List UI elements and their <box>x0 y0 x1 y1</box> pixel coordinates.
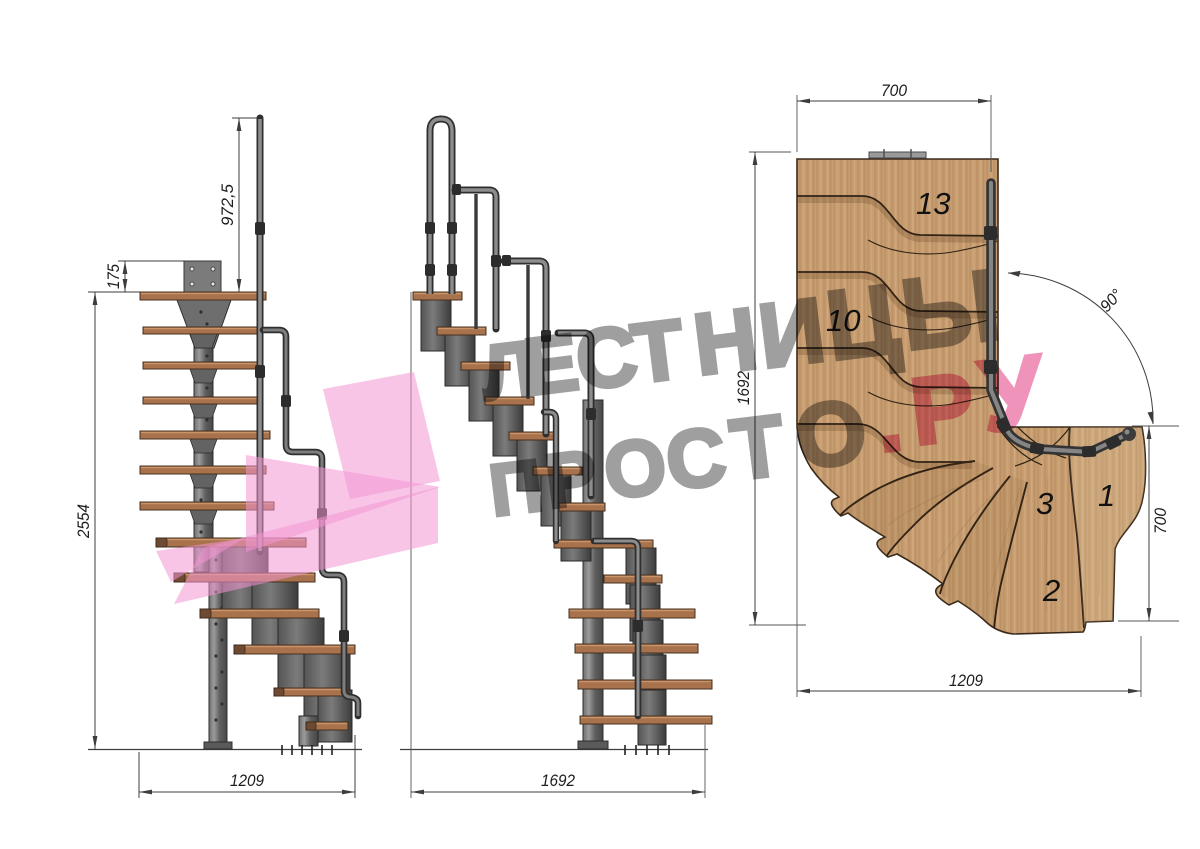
svg-text:2: 2 <box>1042 573 1060 608</box>
svg-text:90°: 90° <box>1097 286 1127 316</box>
svg-text:Т: Т <box>726 397 790 499</box>
svg-text:Р: Р <box>541 434 602 525</box>
svg-text:175: 175 <box>105 263 123 289</box>
svg-text:972,5: 972,5 <box>219 183 237 226</box>
svg-text:Р: Р <box>905 353 981 466</box>
svg-text:1209: 1209 <box>949 672 983 690</box>
svg-text:700: 700 <box>1152 507 1170 534</box>
svg-text:3: 3 <box>1036 486 1053 521</box>
svg-text:13: 13 <box>916 186 950 221</box>
svg-text:Ц: Ц <box>820 263 904 381</box>
svg-text:О: О <box>790 381 872 489</box>
svg-text:Н: Н <box>688 290 762 394</box>
svg-text:И: И <box>753 280 830 388</box>
svg-text:С: С <box>661 410 731 508</box>
svg-text:700: 700 <box>881 82 908 100</box>
svg-text:Т: Т <box>627 301 689 401</box>
svg-text:1: 1 <box>1098 478 1115 513</box>
svg-text:П: П <box>485 445 547 532</box>
svg-text:1692: 1692 <box>541 772 575 790</box>
svg-text:1209: 1209 <box>230 772 264 790</box>
svg-text:О: О <box>599 420 671 516</box>
svg-text:2554: 2554 <box>75 504 93 539</box>
